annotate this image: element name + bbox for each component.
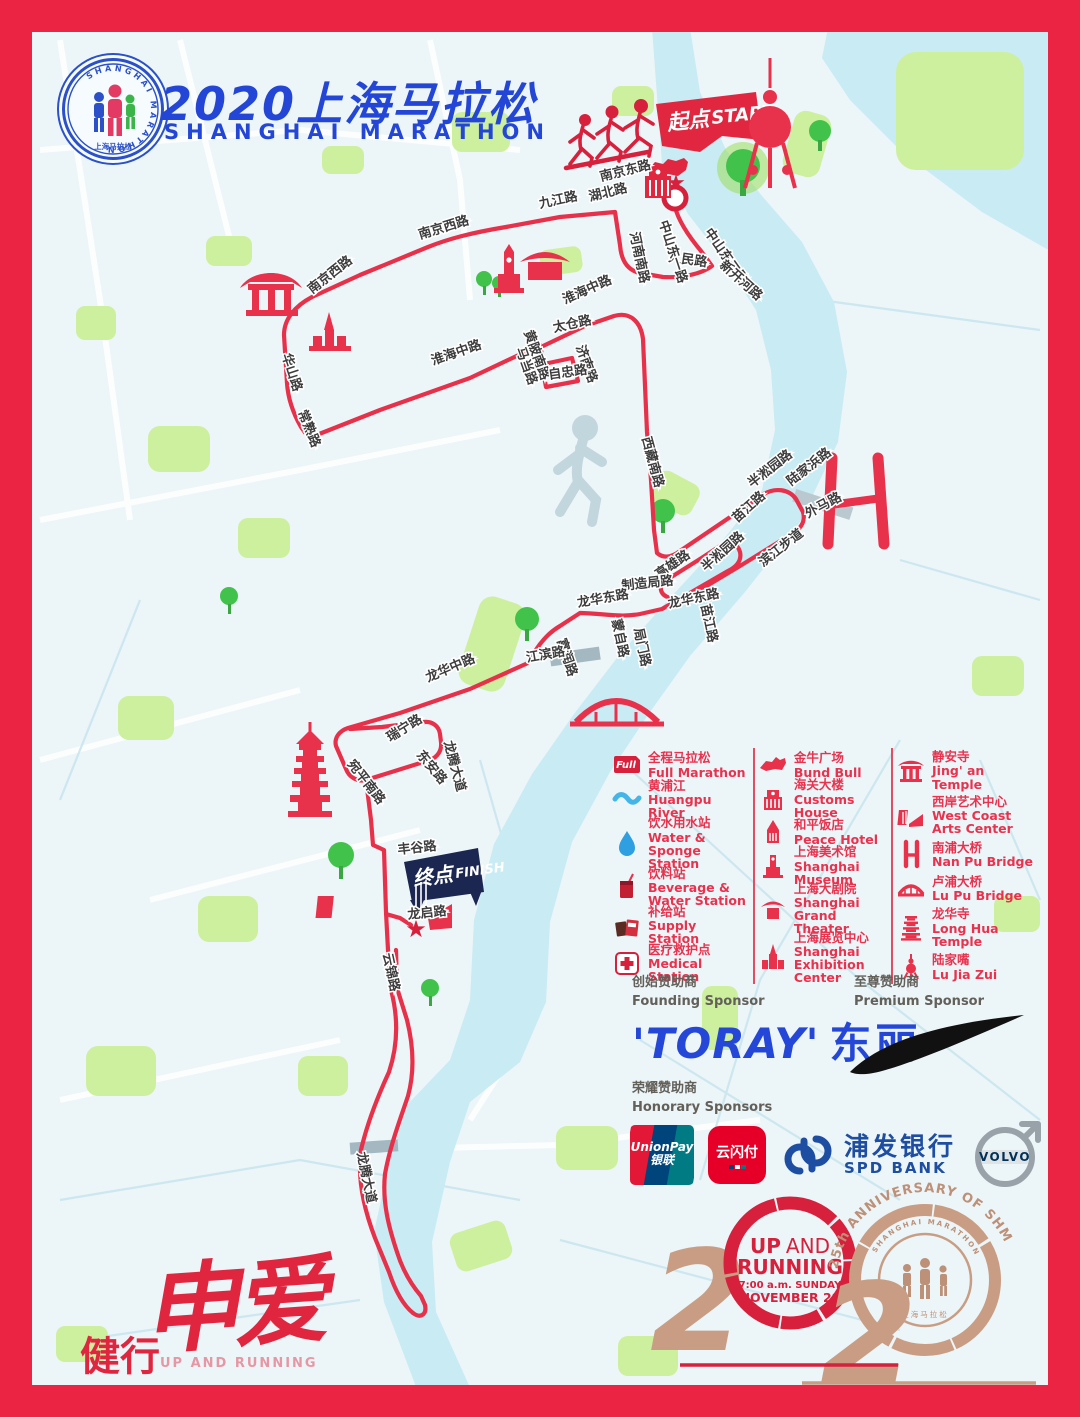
legend-item: 上海大剧院Shanghai Grand Theater xyxy=(758,884,888,933)
poster-frame: 起点 START ★ xyxy=(0,0,1080,1417)
legend-divider xyxy=(753,748,755,984)
map-area: 起点 START ★ xyxy=(32,32,1048,1385)
jingan-temple-icon xyxy=(896,755,926,785)
river-icon xyxy=(612,784,642,814)
legend-item: Full全程马拉松Full Marathon xyxy=(612,750,750,780)
legend-label-en: Water & Sponge Station xyxy=(648,831,750,870)
badge-bottom-text: 上海马拉松 xyxy=(94,141,132,151)
full-flag-icon: Full xyxy=(612,750,642,780)
legend-label-zh: 海关大楼 xyxy=(794,778,888,792)
legend-item-text: 饮水用水站Water & Sponge Station xyxy=(648,816,750,870)
legend-item-text: 静安寺Jing' an Temple xyxy=(932,750,1034,791)
legend-divider xyxy=(891,748,893,984)
beverage-icon xyxy=(612,872,642,902)
legend-label-zh: 和平饭店 xyxy=(794,818,878,832)
legend-label-zh: 金牛广场 xyxy=(794,751,862,765)
legend-item: 海关大楼Customs House xyxy=(758,780,888,817)
nanpu-bridge-icon xyxy=(896,839,926,869)
legend-item-text: 龙华寺Long Hua Temple xyxy=(932,907,1034,948)
legend-item-text: 全程马拉松Full Marathon xyxy=(648,751,746,779)
grand-theater-icon xyxy=(758,894,788,924)
legend-label-zh: 西岸艺术中心 xyxy=(932,795,1034,809)
legend-item: 静安寺Jing' an Temple xyxy=(896,750,1034,791)
legend-label-en: Jing' an Temple xyxy=(932,764,1034,790)
legend-item: 黄浦江Huangpu River xyxy=(612,780,750,818)
legend-item-text: 南浦大桥Nan Pu Bridge xyxy=(932,841,1033,869)
exhibition-center-icon xyxy=(758,943,788,973)
customs-house-icon xyxy=(758,784,788,814)
legend-label-zh: 上海展览中心 xyxy=(794,931,888,945)
legend-label-zh: 补给站 xyxy=(648,905,750,919)
west-coast-icon xyxy=(896,800,926,830)
legend-label-zh: 饮料站 xyxy=(648,867,750,881)
legend-label-zh: 陆家嘴 xyxy=(932,953,997,967)
legend-label-zh: 上海大剧院 xyxy=(794,882,888,896)
legend-label-zh: 卢浦大桥 xyxy=(932,875,1022,889)
legend-label-zh: 黄浦江 xyxy=(648,779,750,793)
legend-item-text: 卢浦大桥Lu Pu Bridge xyxy=(932,875,1022,903)
honorary-sponsors-label: 荣耀赞助商Honorary Sponsors xyxy=(632,1080,772,1118)
slogan-block: 申爱 健行 UP AND RUNNING 活力重燃 xyxy=(80,1228,340,1385)
badge-runner-green xyxy=(126,95,136,130)
legend-panel: Full全程马拉松Full Marathon黄浦江Huangpu River饮水… xyxy=(612,748,1034,984)
legend-label-en: Long Hua Temple xyxy=(932,922,1034,948)
legend-item: 补给站Supply Station xyxy=(612,906,750,944)
legend-item-text: 海关大楼Customs House xyxy=(794,778,888,819)
legend-item: 南浦大桥Nan Pu Bridge xyxy=(896,839,1034,869)
slogan-main: 申爱 xyxy=(137,1222,326,1373)
lupu-bridge-icon xyxy=(896,873,926,903)
legend-label-zh: 饮水用水站 xyxy=(648,816,750,830)
legend-label-en: Customs House xyxy=(794,793,888,819)
badge-runner-pink xyxy=(108,85,122,137)
supply-icon xyxy=(612,910,642,940)
svg-text:VOLVO: VOLVO xyxy=(979,1150,1031,1164)
legend-label-zh: 南浦大桥 xyxy=(932,841,1033,855)
legend-item: 和平饭店Peace Hotel xyxy=(758,817,888,847)
water-drop-icon xyxy=(612,828,642,858)
longhua-temple-icon xyxy=(896,913,926,943)
nike-swoosh-icon xyxy=(838,1010,1028,1090)
legend-item: 饮水用水站Water & Sponge Station xyxy=(612,818,750,868)
bund-bull-icon xyxy=(758,750,788,780)
legend-label-zh: 上海美术馆 xyxy=(794,845,888,859)
badge-runner-blue xyxy=(94,92,104,132)
founding-sponsor-label: 创始赞助商Founding Sponsor xyxy=(632,974,765,1012)
legend-label-zh: 静安寺 xyxy=(932,750,1034,764)
legend-label-en: Full Marathon xyxy=(648,766,746,779)
event-title-en: SHANGHAI MARATHON xyxy=(164,120,551,144)
slogan-bottom: 活力重燃 xyxy=(104,1374,276,1385)
legend-item: 西岸艺术中心West Coast Arts Center xyxy=(896,795,1034,836)
event-logo-badge: SHANGHAI MARATHON 上海马拉松 xyxy=(62,58,164,160)
svg-text:Full: Full xyxy=(616,760,636,771)
premium-sponsor-label: 至尊赞助商Premium Sponsor xyxy=(854,974,984,1012)
legend-item: 饮料站Beverage & Water Station xyxy=(612,868,750,906)
legend-item: 金牛广场Bund Bull xyxy=(758,750,888,780)
peace-hotel-icon xyxy=(758,817,788,847)
legend-item: 龙华寺Long Hua Temple xyxy=(896,907,1034,948)
legend-item-text: 上海大剧院Shanghai Grand Theater xyxy=(794,882,888,936)
legend-item: 卢浦大桥Lu Pu Bridge xyxy=(896,873,1034,903)
legend-item-text: 黄浦江Huangpu River xyxy=(648,779,750,820)
legend-label-en: Lu Pu Bridge xyxy=(932,889,1022,902)
legend-label-zh: 全程马拉松 xyxy=(648,751,746,765)
legend-item-text: 金牛广场Bund Bull xyxy=(794,751,862,779)
slogan-watermark: UP AND RUNNING xyxy=(160,1356,318,1371)
start-label-zh: 起点 xyxy=(665,106,713,135)
legend-label-en: Nan Pu Bridge xyxy=(932,855,1033,868)
legend-item: 上海美术馆Shanghai Museum xyxy=(758,847,888,884)
legend-item-text: 上海美术馆Shanghai Museum xyxy=(794,845,888,886)
legend-label-zh: 龙华寺 xyxy=(932,907,1034,921)
legend-item-text: 西岸艺术中心West Coast Arts Center xyxy=(932,795,1034,836)
legend-item-text: 饮料站Beverage & Water Station xyxy=(648,867,750,908)
shanghai-museum-icon xyxy=(758,851,788,881)
legend-label-zh: 医疗救护点 xyxy=(648,943,750,957)
legend-item-text: 补给站Supply Station xyxy=(648,905,750,946)
legend-item-text: 和平饭店Peace Hotel xyxy=(794,818,878,846)
anniversary-emblem: 2 UPAND RUNNING 7:00 a.m. SUNDAY NOVEMBE… xyxy=(640,1175,1040,1385)
legend-label-en: West Coast Arts Center xyxy=(932,809,1034,835)
